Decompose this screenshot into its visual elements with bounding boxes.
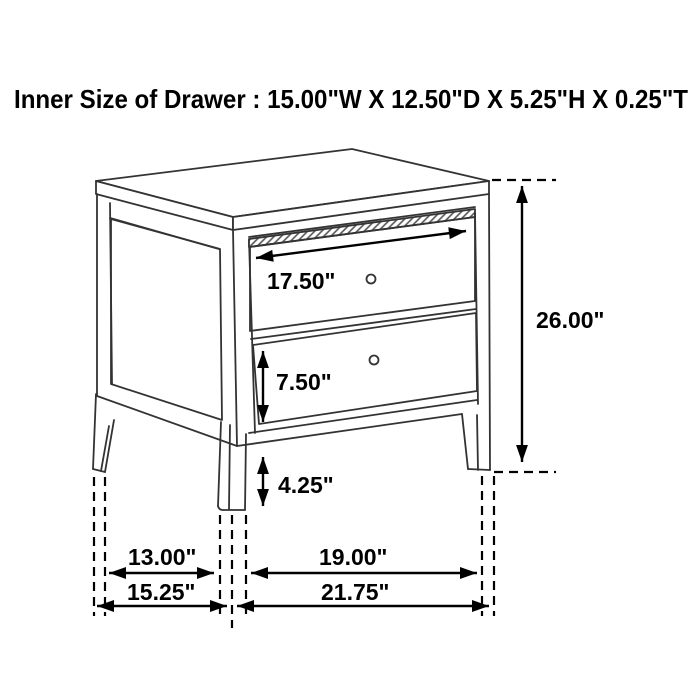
- side-inset-panel: [111, 219, 222, 420]
- label-overall-height: 26.00": [536, 307, 604, 333]
- front-left-leg-right: [245, 434, 246, 510]
- mid-rail-line: [251, 309, 476, 339]
- label-side-leg-gap: 13.00": [128, 544, 196, 570]
- drawer1-knob: [367, 275, 376, 284]
- back-left-leg-outer: [93, 394, 96, 469]
- label-front-overall-width: 21.75": [321, 579, 389, 605]
- front-left-leg-left: [218, 422, 221, 506]
- front-right-leg-corner: [477, 415, 478, 470]
- label-front-leg-gap: 19.00": [319, 544, 387, 570]
- label-leg-height: 4.25": [278, 472, 334, 498]
- label-drawer-front-height: 7.50": [276, 369, 332, 395]
- front-right-leg-bottom: [468, 469, 490, 470]
- dimension-arrows: [97, 186, 522, 606]
- page-title: Inner Size of Drawer : 15.00"W X 12.50"D…: [14, 84, 688, 114]
- nightstand-drawing: [93, 149, 490, 510]
- front-right-leg-left: [462, 414, 468, 469]
- side-bottom-edge: [97, 396, 237, 446]
- right-outer-edge: [489, 194, 490, 470]
- dimension-diagram-page: Inner Size of Drawer : 15.00"W X 12.50"D…: [0, 0, 700, 700]
- front-corner-post-edge: [233, 230, 237, 446]
- label-drawer-width: 17.50": [267, 268, 335, 294]
- dimension-labels: 17.50" 7.50" 26.00" 4.25" 13.00" 19.00" …: [127, 268, 604, 605]
- front-left-leg-bottom: [218, 506, 245, 510]
- front-left-leg-corner: [229, 425, 230, 509]
- drawer2-knob: [370, 356, 379, 365]
- label-side-overall-depth: 15.25": [127, 579, 195, 605]
- back-left-leg-bottom: [93, 469, 105, 472]
- back-left-leg-taper-inner: [101, 426, 109, 471]
- nightstand-dimension-diagram: Inner Size of Drawer : 15.00"W X 12.50"D…: [0, 0, 700, 700]
